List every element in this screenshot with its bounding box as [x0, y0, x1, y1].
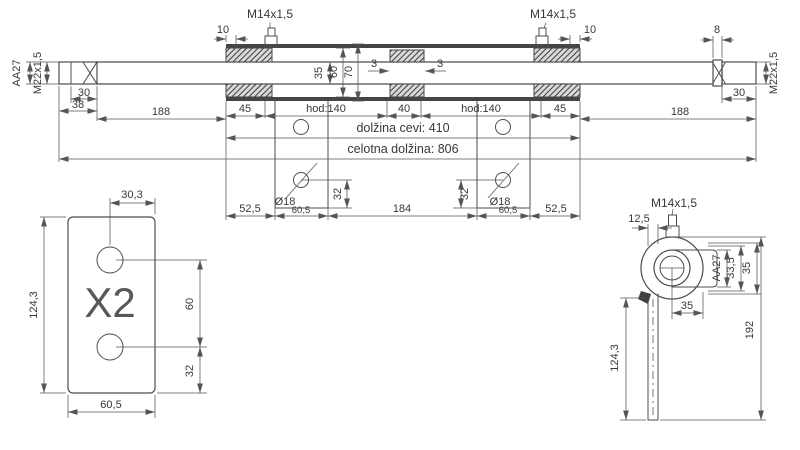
s60-label: 60 [184, 298, 196, 310]
dim-total-length: celotna dolžina: 806 [59, 142, 756, 159]
h192-label: 192 [744, 321, 756, 339]
h124-side-label: 124,3 [609, 344, 621, 372]
len10-right-label: 10 [584, 24, 596, 36]
gap3-right-label: 3 [437, 58, 443, 70]
s32-label: 32 [184, 365, 196, 377]
dim-124-3-plate: 124,3 [28, 217, 66, 393]
dim-32-left: 32 [301, 180, 352, 208]
len40-label: 40 [398, 103, 410, 115]
dia35-label: 35 [313, 67, 325, 79]
dim-188-right: 188 [580, 106, 756, 119]
dim-35-offset: 35 [672, 268, 703, 319]
len45-right-label: 45 [554, 103, 566, 115]
dia70-label: 70 [343, 66, 355, 78]
len8-label: 8 [714, 24, 720, 36]
dim-12-5: 12,5 [628, 213, 672, 246]
len30-left-label: 30 [78, 87, 90, 99]
m22-right-label: M22x1,5 [768, 52, 780, 94]
gap3-left-label: 3 [371, 58, 377, 70]
grease-fitting-left [265, 23, 277, 46]
dim-124-3-side: 124,3 [609, 298, 646, 420]
piston-rod [59, 60, 756, 86]
m14-side-label: M14x1,5 [651, 196, 697, 210]
h32-right-label: 32 [459, 188, 471, 200]
technical-drawing-page: AA27 M22x1,5 30 38 188 10 M14x1,5 [0, 0, 800, 450]
len60-right-label: 60,5 [499, 205, 518, 216]
aa27-left-label: AA27 [11, 60, 23, 87]
mount-plate-left [275, 101, 328, 208]
hole-callout-right: Ø18 [488, 163, 519, 208]
gland-right [534, 48, 580, 97]
m14-right-label: M14x1,5 [530, 7, 576, 21]
tube-length-label: dolžina cevi: 410 [356, 121, 449, 135]
len38-label: 38 [72, 99, 84, 111]
dim-m22-left: M22x1,5 [32, 52, 47, 94]
m14-left-label: M14x1,5 [247, 7, 293, 21]
off35-label: 35 [681, 300, 693, 312]
stroke-right-label: hod:140 [461, 103, 501, 115]
mount-plate-right [477, 101, 530, 208]
piston-sleeve [390, 50, 424, 97]
len52-left-label: 52,5 [239, 203, 260, 215]
plate-view: X2 30,3 124,3 60 32 60,5 [28, 189, 207, 418]
side-view: M14x1,5 12,5 AA27 33,5 35 [609, 196, 766, 420]
dim-30-right: 30 [722, 86, 756, 162]
w60-label: 60,5 [100, 399, 121, 411]
dim-32-plate: 32 [157, 347, 207, 393]
len60-left-label: 60,5 [292, 205, 311, 216]
grease-fitting-side [666, 209, 679, 237]
dim-dia-35-60-70: 35 60 70 [313, 44, 364, 101]
m22-left-label: M22x1,5 [32, 52, 44, 94]
len188-right-label: 188 [671, 106, 689, 118]
len45-left-label: 45 [239, 103, 251, 115]
aa27-side-label: AA27 [711, 255, 723, 282]
len30-right-label: 30 [733, 87, 745, 99]
w35-label: 35 [741, 262, 753, 274]
quantity-label: X2 [84, 279, 135, 326]
gland-left [226, 48, 272, 97]
w33-label: 33,5 [725, 257, 737, 278]
dia60-label: 60 [328, 66, 340, 78]
len188-left-label: 188 [152, 106, 170, 118]
h124-plate-label: 124,3 [28, 291, 40, 319]
t12-label: 12,5 [628, 213, 649, 225]
stroke-left-label: hod:140 [306, 103, 346, 115]
grease-fitting-right [536, 23, 548, 46]
dim-8-right: 8 [701, 24, 734, 58]
eye-ring [641, 237, 717, 299]
dim-60-5-plate: 60,5 [68, 395, 155, 418]
h32-left-label: 32 [332, 188, 344, 200]
dim-stroke-row: 45 hod:140 40 hod:140 45 [226, 101, 580, 118]
len184-label: 184 [393, 203, 411, 215]
dim-10-left: 10 [214, 24, 248, 46]
cylinder-drawing: AA27 M22x1,5 30 38 188 10 M14x1,5 [0, 0, 800, 450]
plate-edge-bar [638, 291, 658, 420]
total-length-label: celotna dolžina: 806 [347, 142, 458, 156]
dim-m22-right: M22x1,5 [756, 52, 780, 94]
dim-188-left: 188 [97, 106, 226, 119]
dim-10-right: 10 [558, 24, 596, 46]
len52-right-label: 52,5 [545, 203, 566, 215]
len10-left-label: 10 [217, 24, 229, 36]
w30-label: 30,3 [121, 189, 142, 201]
